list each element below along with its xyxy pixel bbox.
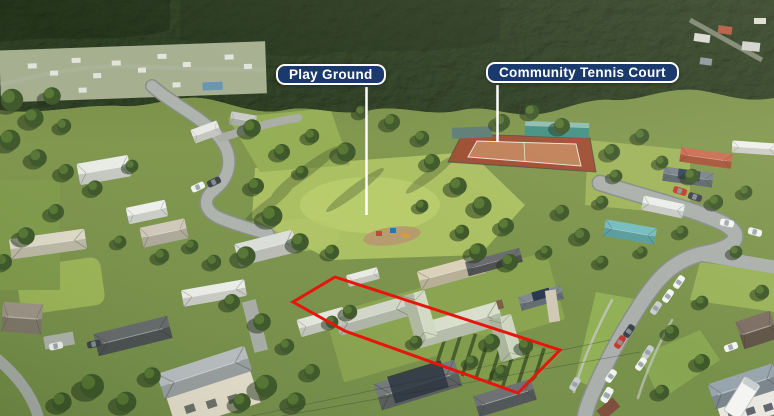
- tennis-court-label: Community Tennis Court: [486, 62, 679, 83]
- aerial-photo: Play Ground Community Tennis Court: [0, 0, 774, 416]
- playground-label-text: Play Ground: [289, 67, 373, 82]
- tennis-court-label-text: Community Tennis Court: [499, 65, 666, 80]
- playground-label: Play Ground: [276, 64, 386, 85]
